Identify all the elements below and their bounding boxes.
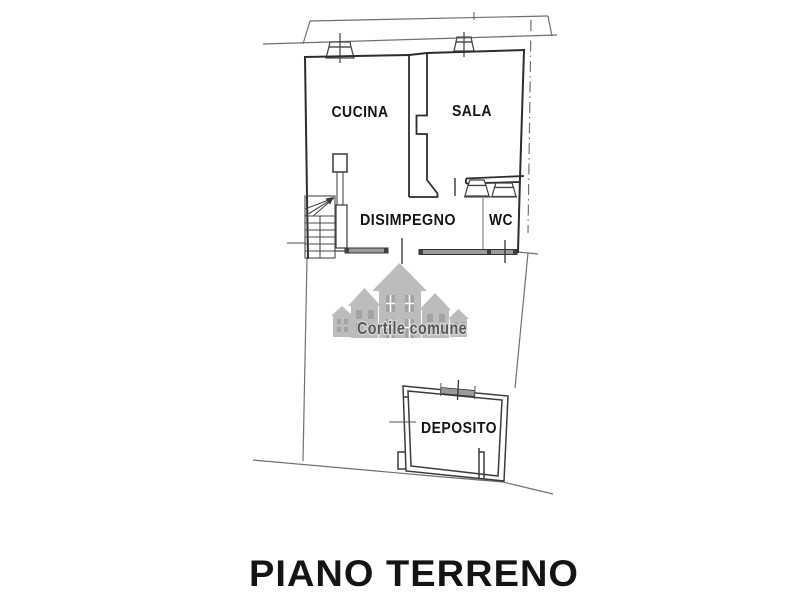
- facade-wall-segment-left: [345, 248, 388, 253]
- facade-right-dot: [487, 250, 491, 254]
- facade-left-cap-a: [345, 248, 349, 253]
- house-1-body: [333, 314, 351, 337]
- facade-right-cap-a: [419, 250, 423, 255]
- label-deposito: DEPOSITO: [421, 420, 497, 437]
- kitchen-flue-box: [333, 154, 347, 172]
- label-wc: WC: [489, 212, 513, 229]
- label-cucina: CUCINA: [332, 104, 389, 121]
- stair-side-wall-stub: [336, 205, 347, 248]
- toilet-tank: [468, 180, 486, 186]
- floor-plan-canvas: Cortile comune CUCINA SALA DISIMPEGNO WC…: [0, 0, 800, 600]
- toilet-bowl: [465, 186, 489, 197]
- facade-left-cap-b: [384, 248, 388, 253]
- watermark-text: Cortile comune: [357, 318, 467, 338]
- sink-top: [495, 183, 514, 188]
- label-sala: SALA: [452, 103, 492, 120]
- plan-title: PIANO TERRENO: [249, 553, 579, 594]
- facade-wall-segment-right: [419, 250, 517, 255]
- facade-right-cap-b: [513, 250, 517, 255]
- sink-basin: [492, 188, 516, 197]
- label-disimpegno: DISIMPEGNO: [360, 212, 456, 229]
